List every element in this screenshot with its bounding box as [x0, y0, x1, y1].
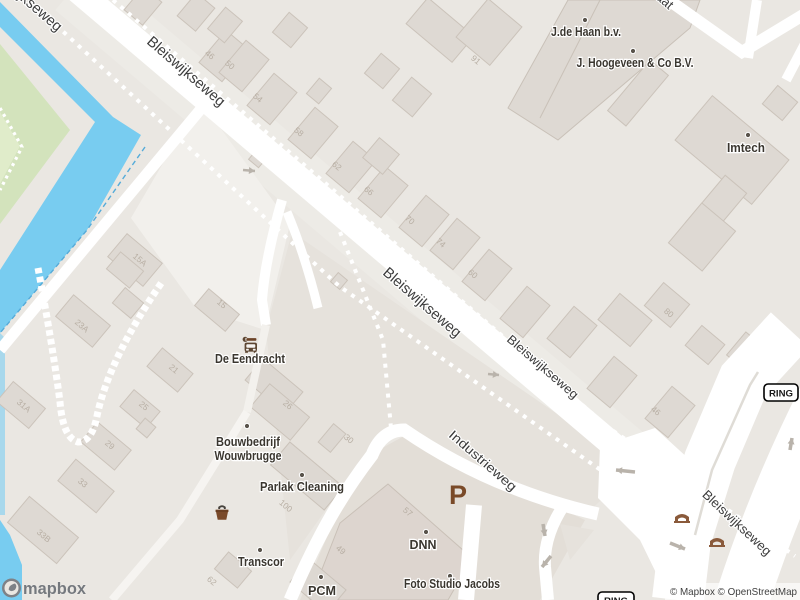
svg-text:DNN: DNN — [410, 538, 437, 552]
svg-text:J.de Haan b.v.: J.de Haan b.v. — [551, 25, 621, 39]
svg-text:© Mapbox © OpenStreetMap: © Mapbox © OpenStreetMap — [670, 587, 797, 598]
svg-text:Imtech: Imtech — [727, 141, 765, 155]
svg-text:De Eendracht: De Eendracht — [215, 352, 286, 366]
svg-text:P: P — [449, 480, 467, 510]
svg-text:Foto Studio Jacobs: Foto Studio Jacobs — [404, 577, 500, 591]
svg-text:mapbox: mapbox — [23, 580, 87, 598]
svg-text:Parlak Cleaning: Parlak Cleaning — [260, 480, 344, 494]
svg-text:RING: RING — [604, 596, 628, 600]
svg-text:PCM: PCM — [308, 584, 336, 598]
svg-text:RING: RING — [769, 389, 793, 400]
svg-text:J. Hoogeveen & Co B.V.: J. Hoogeveen & Co B.V. — [577, 56, 694, 70]
svg-text:Bouwbedrijf: Bouwbedrijf — [216, 435, 281, 449]
svg-text:Wouwbrugge: Wouwbrugge — [215, 449, 282, 463]
svg-text:Transcor: Transcor — [238, 555, 284, 569]
